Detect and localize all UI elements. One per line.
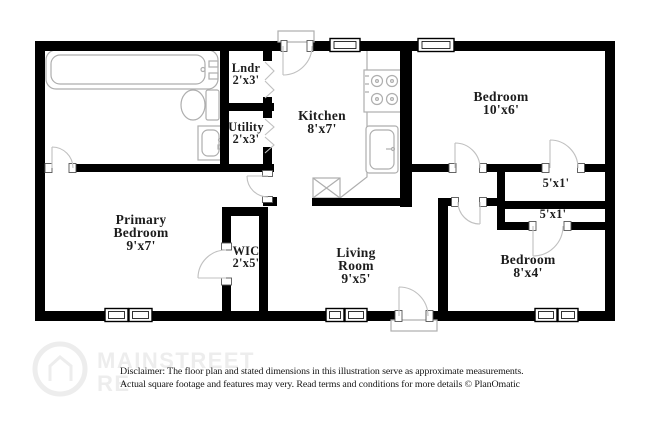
bathtub-icon (46, 50, 218, 89)
toilet-icon (181, 90, 219, 120)
disclaimer-line-1: Disclaimer: The floor plan and stated di… (120, 365, 550, 378)
room-label-closet-bottom: 5'x1' (540, 209, 567, 221)
room-label-living-room: Living Room 9'x5' (336, 247, 375, 285)
room-label-primary-bedroom: Primary Bedroom 9'x7' (113, 214, 168, 252)
room-label-lndr: Lndr 2'x3' (232, 63, 261, 87)
floor-plan: MAINSTREET RE (0, 0, 650, 433)
kitchen-sink-icon (366, 126, 398, 173)
mainstreet-logo-icon (35, 344, 85, 394)
disclaimer: Disclaimer: The floor plan and stated di… (120, 365, 550, 392)
room-label-bedroom-right: Bedroom 8'x4' (500, 254, 555, 280)
room-label-kitchen: Kitchen 8'x7' (298, 110, 346, 136)
room-label-utility: Utility 2'x3' (228, 122, 264, 146)
room-label-bedroom-top: Bedroom 10'x6' (473, 91, 528, 117)
water-heater-icon (313, 178, 340, 198)
room-label-wic: WIC 2'x5' (233, 246, 260, 270)
room-label-closet-top: 5'x1' (543, 178, 570, 190)
disclaimer-line-2: Actual square footage and features may v… (120, 378, 550, 391)
stove-icon (364, 70, 401, 112)
